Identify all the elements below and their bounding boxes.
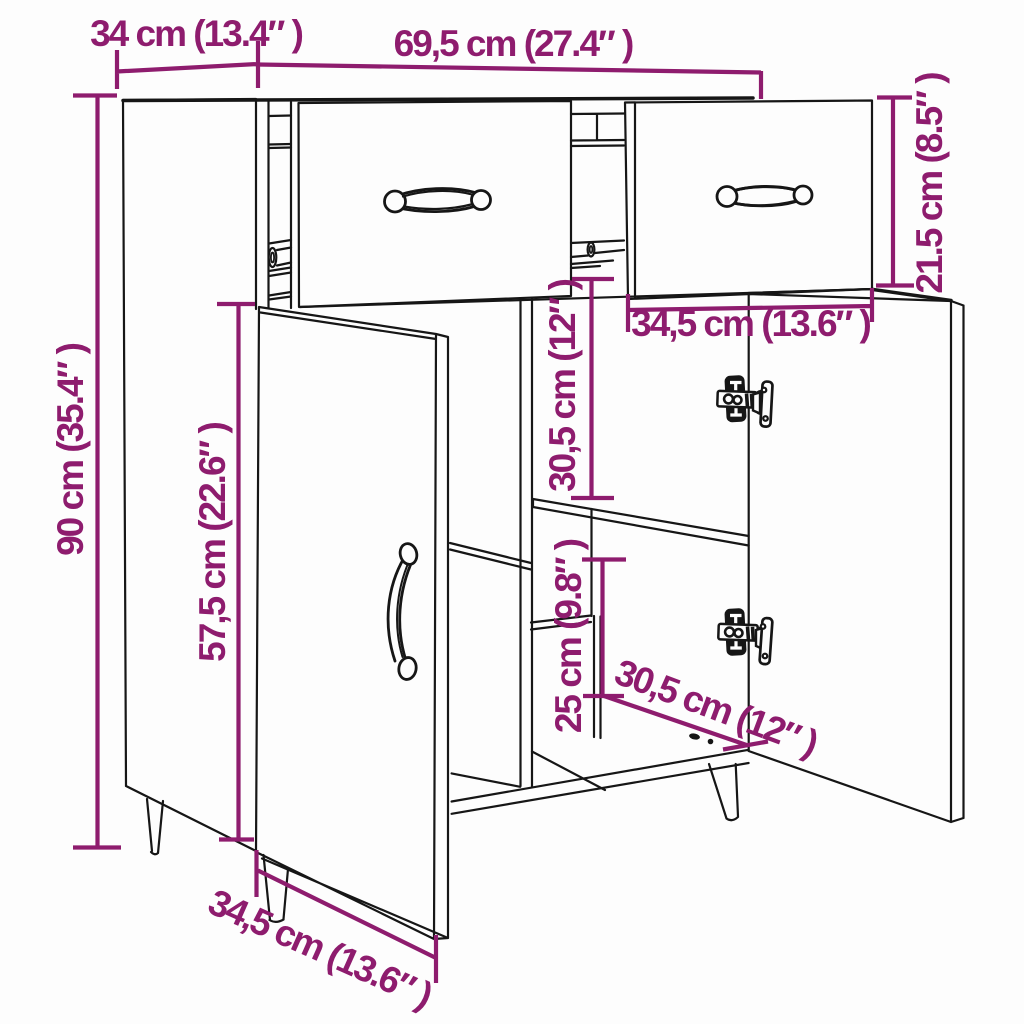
svg-text:21.5 cm (8.5″ ): 21.5 cm (8.5″ ) [909, 73, 950, 294]
svg-text:57,5 cm (22.6″ ): 57,5 cm (22.6″ ) [192, 422, 233, 661]
svg-text:34 cm (13.4″ ): 34 cm (13.4″ ) [90, 13, 303, 54]
svg-text:34,5 cm (13.6″ ): 34,5 cm (13.6″ ) [631, 303, 870, 344]
svg-text:30,5 cm (12″ ): 30,5 cm (12″ ) [542, 279, 583, 492]
svg-text:25 cm (9.8″ ): 25 cm (9.8″ ) [548, 539, 589, 733]
svg-text:69,5 cm (27.4″ ): 69,5 cm (27.4″ ) [394, 23, 633, 64]
svg-text:90 cm (35.4″ ): 90 cm (35.4″ ) [50, 343, 91, 556]
